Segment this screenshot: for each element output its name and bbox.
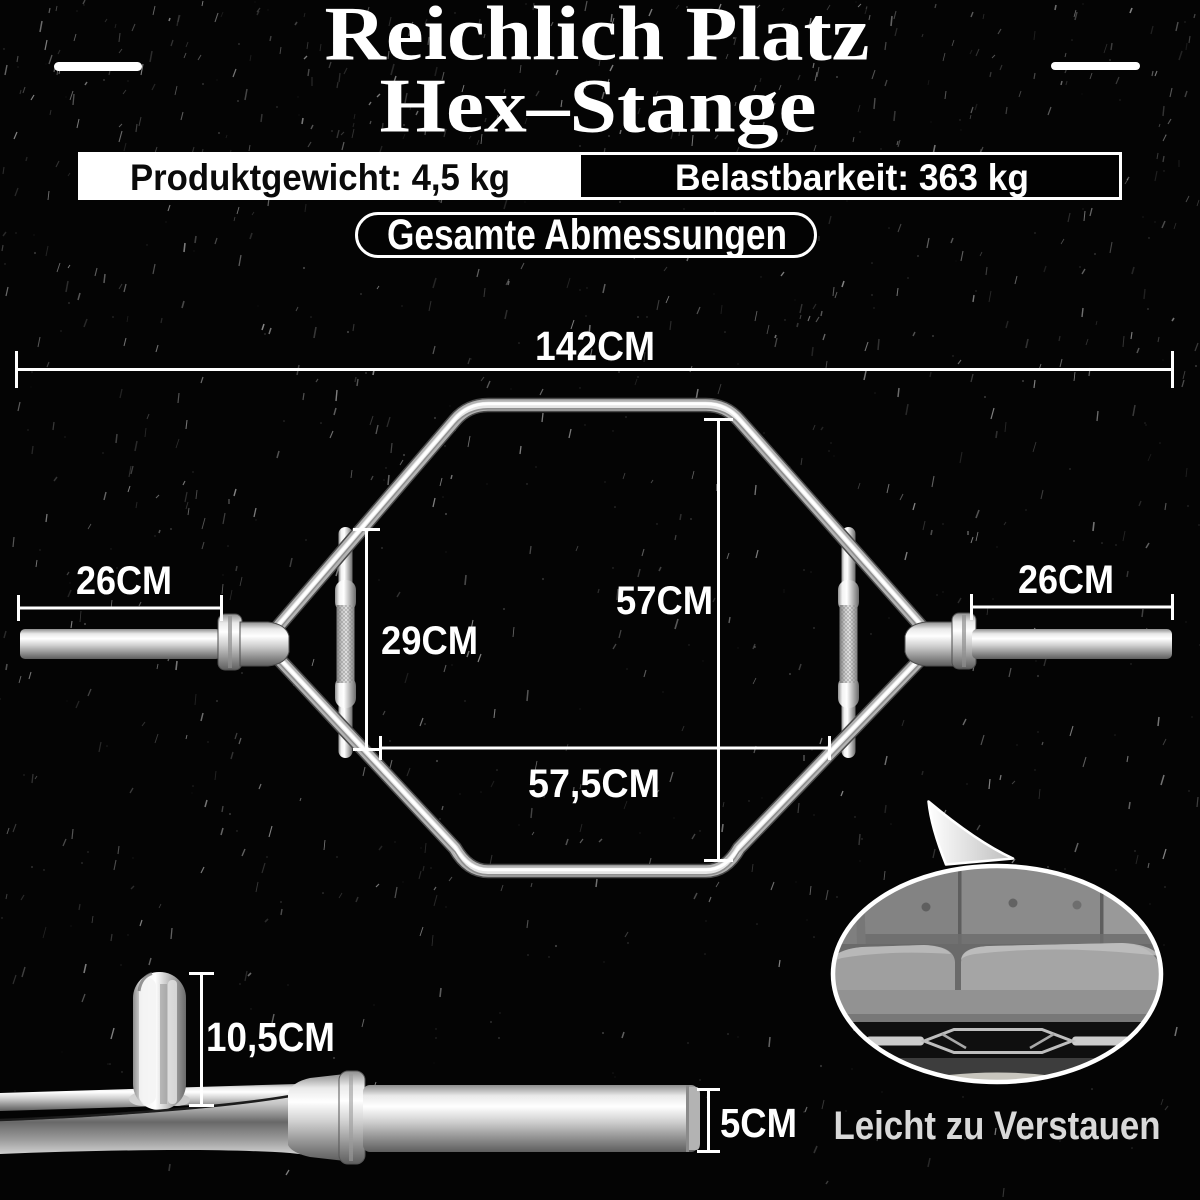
svg-text:Leicht zu Verstauen: Leicht zu Verstauen (834, 1104, 1161, 1148)
svg-text:Produktgewicht: 4,5 kg: Produktgewicht: 4,5 kg (130, 157, 510, 198)
svg-text:26CM: 26CM (1018, 558, 1114, 602)
svg-text:Hex–Stange: Hex–Stange (380, 63, 817, 149)
svg-text:29CM: 29CM (381, 619, 478, 663)
svg-text:57,5CM: 57,5CM (528, 762, 660, 806)
svg-text:5CM: 5CM (720, 1100, 797, 1146)
svg-text:26CM: 26CM (76, 559, 172, 603)
svg-text:Belastbarkeit: 363 kg: Belastbarkeit: 363 kg (675, 157, 1029, 198)
svg-text:142CM: 142CM (535, 323, 655, 369)
svg-text:10,5CM: 10,5CM (206, 1014, 335, 1060)
svg-text:57CM: 57CM (616, 579, 713, 623)
svg-text:Gesamte Abmessungen: Gesamte Abmessungen (387, 211, 787, 259)
